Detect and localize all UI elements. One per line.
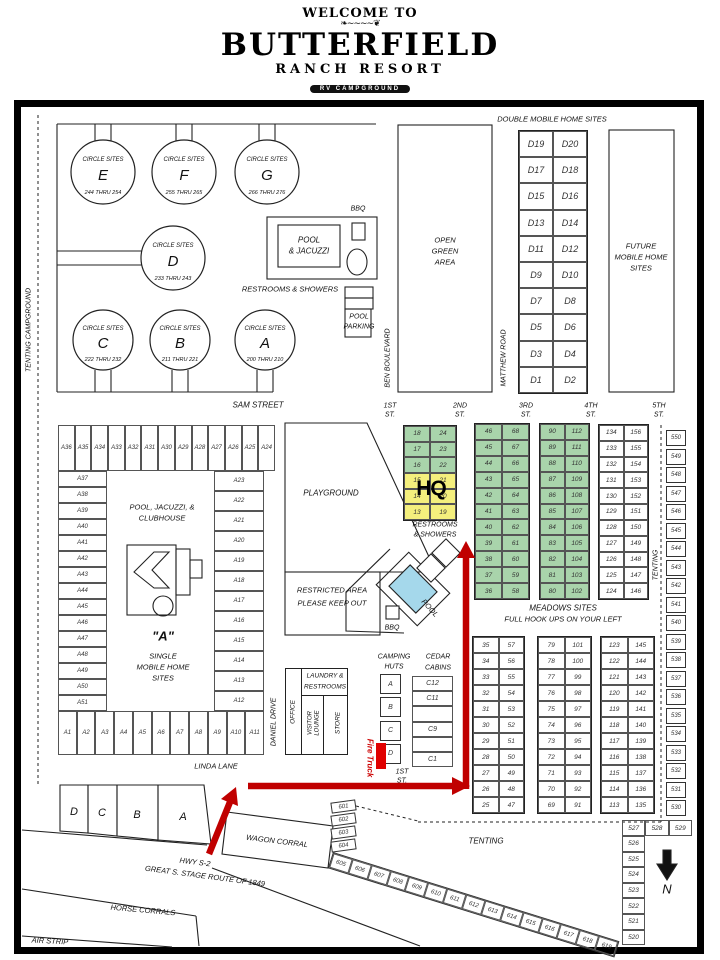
site-cell: 122 <box>601 653 628 669</box>
site-cell: 522 <box>622 898 645 914</box>
site-cell: 146 <box>624 583 649 599</box>
site-cell: 58 <box>502 583 529 599</box>
fourth-street-grid: 1341561331551321541311531301521291511281… <box>598 424 649 600</box>
site-cell: 532 <box>666 763 686 779</box>
site-cell: 81 <box>540 567 565 583</box>
site-cell: 542 <box>666 578 686 594</box>
corner-row-527-529: 527528529 <box>622 820 692 836</box>
site-cell: A36 <box>58 425 75 471</box>
site-cell: 132 <box>599 457 624 473</box>
a-sites-right-col: A23A22A21A20A19A18A17A16A15A14A13A12 <box>214 471 264 711</box>
campground-map-page: WELCOME TO ❧∼∼∼∼❦ BUTTERFIELD RANCH RESO… <box>0 0 720 960</box>
site-cell: A1 <box>58 711 77 755</box>
resort-logo-subtitle: RANCH RESORT <box>0 62 720 77</box>
site-cell: 530 <box>666 800 686 816</box>
site-cell: A35 <box>75 425 92 471</box>
site-cell: 133 <box>599 441 624 457</box>
site-cell: 60 <box>502 551 529 567</box>
site-cell: 92 <box>565 781 592 797</box>
hwy-sites-601-604: 601602603604 <box>331 801 356 852</box>
site-cell: A6 <box>152 711 171 755</box>
street-1-label: 1ST <box>384 403 397 410</box>
site-cell: 30 <box>473 717 499 733</box>
site-cell: 91 <box>565 797 592 813</box>
site-cell: 99 <box>565 669 592 685</box>
site-cell: 36 <box>475 583 502 599</box>
site-cell: A25 <box>242 425 259 471</box>
site-cell: 48 <box>499 781 525 797</box>
office-label: OFFICE <box>290 700 297 724</box>
a-sites-left-col: A37A38A39A40A41A42A43A44A45A46A47A48A49A… <box>58 471 107 711</box>
site-cell: A32 <box>125 425 142 471</box>
site-cell: 538 <box>666 652 686 668</box>
site-cell: 71 <box>538 765 565 781</box>
site-cell: 32 <box>473 685 499 701</box>
site-cell: 51 <box>499 733 525 749</box>
open-green-label-1: OPEN <box>434 236 455 245</box>
pool-jacuzzi-clubhouse-label-1: POOL, JACUZZI, & <box>129 503 194 512</box>
site-cell: D1 <box>519 367 553 393</box>
site-cell: A43 <box>58 567 107 583</box>
site-cell: 539 <box>666 634 686 650</box>
site-cell: A15 <box>214 631 264 651</box>
site-cell: D6 <box>553 314 587 340</box>
north-label: N <box>662 882 671 897</box>
pool-jacuzzi-label-2: & JACUZZI <box>289 247 329 256</box>
site-cell: D20 <box>553 131 587 157</box>
site-cell: 104 <box>565 551 590 567</box>
site-cell: 19 <box>430 504 456 520</box>
a-area-sub-2: MOBILE HOME <box>137 663 190 672</box>
camping-huts-label-1: CAMPING <box>378 654 411 661</box>
site-cell: 523 <box>622 883 645 899</box>
meadows-grid-2: 7910178100779976987597749673957294719370… <box>537 636 592 814</box>
pool-jacuzzi-clubhouse-label-2: CLUBHOUSE <box>139 514 186 523</box>
header: WELCOME TO ❧∼∼∼∼❦ BUTTERFIELD RANCH RESO… <box>0 0 720 109</box>
site-cell: 604 <box>330 838 356 852</box>
site-cell: 73 <box>538 733 565 749</box>
site-cell: A41 <box>58 535 107 551</box>
site-cell: A5 <box>133 711 152 755</box>
site-cell: D17 <box>519 157 553 183</box>
site-cell: 124 <box>599 583 624 599</box>
daniel-drive-label: DANIEL DRIVE <box>271 698 278 747</box>
site-cell: A <box>380 674 401 694</box>
site-cell: 76 <box>538 685 565 701</box>
site-cell: 97 <box>565 701 592 717</box>
site-cell: 106 <box>565 519 590 535</box>
cedar-cabins-list: C12C11C9C1 <box>412 676 453 767</box>
site-cell: 52 <box>499 717 525 733</box>
site-cell: 88 <box>540 456 565 472</box>
site-cell: 34 <box>473 653 499 669</box>
site-cell: A27 <box>208 425 225 471</box>
street-2-label-2: ST. <box>455 412 465 419</box>
restricted-label-2: PLEASE KEEP OUT <box>298 599 367 608</box>
site-cell: 534 <box>666 726 686 742</box>
site-cell: C12 <box>412 676 453 691</box>
site-cell: D12 <box>553 236 587 262</box>
street-2-label: 2ND <box>453 403 467 410</box>
site-cell: 31 <box>473 701 499 717</box>
site-cell: 47 <box>499 797 525 813</box>
site-cell: 29 <box>473 733 499 749</box>
sam-street-label: SAM STREET <box>232 401 283 410</box>
site-cell: 148 <box>624 552 649 568</box>
site-cell: 524 <box>622 867 645 883</box>
site-cell: 141 <box>628 701 655 717</box>
site-cell: 144 <box>628 653 655 669</box>
site-cell: 26 <box>473 781 499 797</box>
site-cell: 126 <box>599 552 624 568</box>
site-cell: 44 <box>475 456 502 472</box>
site-cell: 550 <box>666 430 686 446</box>
site-cell: 149 <box>624 536 649 552</box>
site-cell: 27 <box>473 765 499 781</box>
site-cell: 22 <box>430 457 456 473</box>
site-cell: 67 <box>502 440 529 456</box>
tenting-vertical-label: TENTING <box>653 550 660 581</box>
site-cell: A51 <box>58 695 107 711</box>
street-4-label: 4TH <box>584 403 597 410</box>
site-cell: 110 <box>565 456 590 472</box>
double-mobile-label: DOUBLE MOBILE HOME SITES <box>497 115 607 124</box>
site-cell: 84 <box>540 519 565 535</box>
site-cell: 55 <box>499 669 525 685</box>
laundry-label-2: RESTROOMS <box>304 684 346 691</box>
resort-logo-title: BUTTERFIELD <box>0 30 720 61</box>
camping-huts-label-2: HUTS <box>384 664 403 671</box>
site-cell: 102 <box>565 583 590 599</box>
site-cell: 529 <box>669 820 692 836</box>
site-cell: 57 <box>499 637 525 653</box>
site-cell: 41 <box>475 504 502 520</box>
site-cell: A34 <box>91 425 108 471</box>
site-cell: D8 <box>553 288 587 314</box>
site-cell: A4 <box>114 711 133 755</box>
site-cell: 49 <box>499 765 525 781</box>
site-cell: A21 <box>214 511 264 531</box>
ben-boulevard-label: BEN BOULEVARD <box>385 328 392 387</box>
street-3-label-2: ST. <box>521 412 531 419</box>
site-cell: 35 <box>473 637 499 653</box>
site-cell: 147 <box>624 567 649 583</box>
site-cell: 525 <box>622 852 645 868</box>
site-cell: 153 <box>624 472 649 488</box>
site-cell: 17 <box>404 442 430 458</box>
site-cell: D14 <box>553 210 587 236</box>
site-cell: A30 <box>158 425 175 471</box>
future-mobile-label-2: MOBILE HOME <box>615 253 668 262</box>
site-cell: A33 <box>108 425 125 471</box>
third-street-grid: 9011289111881108710986108851078410683105… <box>539 423 590 600</box>
site-cell: A12 <box>214 691 264 711</box>
playground-label: PLAYGROUND <box>303 489 358 498</box>
fire-truck-marker <box>376 743 386 769</box>
site-cell: 87 <box>540 472 565 488</box>
site-cell: B <box>380 697 401 717</box>
site-cell: 526 <box>622 836 645 852</box>
site-cell: 18 <box>404 426 430 442</box>
street-4-label-2: ST. <box>586 412 596 419</box>
site-cell: A8 <box>189 711 208 755</box>
site-cell: 113 <box>601 797 628 813</box>
site-cell: 83 <box>540 535 565 551</box>
site-cell: 143 <box>628 669 655 685</box>
site-cell: 139 <box>628 733 655 749</box>
site-cell: 541 <box>666 597 686 613</box>
site-cell: 112 <box>565 424 590 440</box>
site-cell: A45 <box>58 599 107 615</box>
site-cell: 56 <box>499 653 525 669</box>
matthew-road-label: MATTHEW ROAD <box>501 329 508 386</box>
site-cell: D4 <box>553 341 587 367</box>
tenting-area-label: TENTING <box>468 837 503 846</box>
street-5-label: 5TH <box>652 403 665 410</box>
site-cell <box>412 737 453 752</box>
site-cell: 537 <box>666 671 686 687</box>
site-cell: A2 <box>77 711 96 755</box>
site-cell: 68 <box>502 424 529 440</box>
a-sites-bottom-row: A1A2A3A4A5A6A7A8A9A10A11 <box>58 711 264 755</box>
site-cell: 115 <box>601 765 628 781</box>
future-mobile-label-1: FUTURE <box>626 242 656 251</box>
site-cell: 98 <box>565 685 592 701</box>
site-cell: C11 <box>412 691 453 706</box>
site-cell: 64 <box>502 488 529 504</box>
site-cell: D9 <box>519 262 553 288</box>
bbq-label-pool: BBQ <box>385 625 400 632</box>
site-cell: 54 <box>499 685 525 701</box>
site-cell: 100 <box>565 653 592 669</box>
site-cell: 135 <box>628 797 655 813</box>
site-cell: 120 <box>601 685 628 701</box>
site-cell: 121 <box>601 669 628 685</box>
site-cell: A46 <box>58 615 107 631</box>
site-cell: 94 <box>565 749 592 765</box>
site-cell: A49 <box>58 663 107 679</box>
site-cell: 111 <box>565 440 590 456</box>
site-cell: 155 <box>624 441 649 457</box>
site-cell: 117 <box>601 733 628 749</box>
site-cell: D11 <box>519 236 553 262</box>
site-cell: 128 <box>599 520 624 536</box>
site-cell: A19 <box>214 551 264 571</box>
site-cell: 24 <box>430 426 456 442</box>
site-cell: 86 <box>540 488 565 504</box>
site-cell: 131 <box>599 472 624 488</box>
site-cell: 142 <box>628 685 655 701</box>
site-cell: 118 <box>601 717 628 733</box>
site-cell: 13 <box>404 504 430 520</box>
restricted-label-1: RESTRICTED AREA <box>297 586 367 595</box>
site-cell: 107 <box>565 504 590 520</box>
site-cell: D10 <box>553 262 587 288</box>
site-cell: 95 <box>565 733 592 749</box>
site-cell: A48 <box>58 647 107 663</box>
site-cell: 119 <box>601 701 628 717</box>
site-cell: 46 <box>475 424 502 440</box>
site-cell: 151 <box>624 504 649 520</box>
site-cell: 53 <box>499 701 525 717</box>
site-cell: D15 <box>519 183 553 209</box>
a-sites-top-row: A36A35A34A33A32A31A30A29A28A27A26A25A24 <box>58 425 275 471</box>
site-cell: 521 <box>622 914 645 930</box>
site-cell: D7 <box>519 288 553 314</box>
site-cell: A50 <box>58 679 107 695</box>
first-st-bottom-label-1: 1ST <box>396 769 409 776</box>
site-cell: 103 <box>565 567 590 583</box>
fire-truck-label: Fire Truck <box>366 739 375 778</box>
tenting-campground-label: TENTING CAMPGROUND <box>26 288 33 372</box>
meadows-label: MEADOWS SITES <box>529 604 597 613</box>
a-area-sub-3: SITES <box>152 674 174 683</box>
site-cell: 77 <box>538 669 565 685</box>
corner-col-520-526: 526525524523522521520 <box>622 836 645 945</box>
site-cell: 129 <box>599 504 624 520</box>
site-cell: 79 <box>538 637 565 653</box>
site-cell: 65 <box>502 472 529 488</box>
site-cell: 23 <box>430 442 456 458</box>
pool-parking-label-1: POOL <box>349 314 368 321</box>
site-cell: A11 <box>245 711 264 755</box>
pool-jacuzzi-label-1: POOL <box>298 236 320 245</box>
site-cell: 138 <box>628 749 655 765</box>
rv-campground-ribbon: RV CAMPGROUND <box>310 85 410 93</box>
site-cell: 123 <box>601 637 628 653</box>
site-cell: 154 <box>624 457 649 473</box>
site-cell: A3 <box>95 711 114 755</box>
site-cell: 109 <box>565 472 590 488</box>
site-cell: 25 <box>473 797 499 813</box>
site-cell: 59 <box>502 567 529 583</box>
hq-label: HQ <box>416 477 446 501</box>
site-cell: A40 <box>58 519 107 535</box>
future-mobile-label-3: SITES <box>630 264 652 273</box>
site-cell: 125 <box>599 567 624 583</box>
site-cell: A7 <box>170 711 189 755</box>
open-green-label-2: GREEN <box>432 247 459 256</box>
street-3-label: 3RD <box>519 403 533 410</box>
site-cell: A44 <box>58 583 107 599</box>
site-cell: 37 <box>475 567 502 583</box>
store-label: STORE <box>335 712 342 734</box>
site-cell: 535 <box>666 708 686 724</box>
site-cell: 114 <box>601 781 628 797</box>
first-street-grid: 182417231622152114201319 <box>403 425 457 521</box>
site-cell: 156 <box>624 425 649 441</box>
site-cell: 50 <box>499 749 525 765</box>
site-cell: 150 <box>624 520 649 536</box>
site-cell: 520 <box>622 930 645 946</box>
site-cell: 96 <box>565 717 592 733</box>
site-cell: D5 <box>519 314 553 340</box>
site-cell: D16 <box>553 183 587 209</box>
site-cell: A17 <box>214 591 264 611</box>
site-cell: 140 <box>628 717 655 733</box>
site-cell: A42 <box>58 551 107 567</box>
site-cell: 531 <box>666 782 686 798</box>
site-cell: A37 <box>58 471 107 487</box>
site-cell: 33 <box>473 669 499 685</box>
site-cell: A28 <box>192 425 209 471</box>
site-cell: 527 <box>622 820 645 836</box>
site-cell: A18 <box>214 571 264 591</box>
site-cell: 62 <box>502 519 529 535</box>
site-cell: 28 <box>473 749 499 765</box>
site-cell: A26 <box>225 425 242 471</box>
site-cell: 546 <box>666 504 686 520</box>
site-cell: A29 <box>175 425 192 471</box>
site-cell: A31 <box>141 425 158 471</box>
site-cell: 136 <box>628 781 655 797</box>
site-cell: A39 <box>58 503 107 519</box>
site-cell: 45 <box>475 440 502 456</box>
linda-lane-label: LINDA LANE <box>194 762 238 771</box>
site-cell: 63 <box>502 504 529 520</box>
site-cell: 544 <box>666 541 686 557</box>
site-cell <box>412 706 453 721</box>
site-cell: 69 <box>538 797 565 813</box>
site-cell: D2 <box>553 367 587 393</box>
site-cell: 72 <box>538 749 565 765</box>
site-cell: 42 <box>475 488 502 504</box>
site-cell: 16 <box>404 457 430 473</box>
site-cell: 116 <box>601 749 628 765</box>
site-cell: A38 <box>58 487 107 503</box>
site-cell: 39 <box>475 535 502 551</box>
site-cell: C1 <box>412 752 453 767</box>
site-cell: 547 <box>666 486 686 502</box>
site-cell: 80 <box>540 583 565 599</box>
site-cell: 89 <box>540 440 565 456</box>
cedar-cabins-label-1: CEDAR <box>426 654 451 661</box>
site-cell: 108 <box>565 488 590 504</box>
first-st-bottom-label-2: ST. <box>397 778 407 785</box>
site-cell: 134 <box>599 425 624 441</box>
site-cell: D19 <box>519 131 553 157</box>
site-cell: 101 <box>565 637 592 653</box>
site-cell: A23 <box>214 471 264 491</box>
site-cell: 75 <box>538 701 565 717</box>
site-cell: 536 <box>666 689 686 705</box>
site-cell: 78 <box>538 653 565 669</box>
air-strip-label: AIR STRIP <box>31 936 68 947</box>
site-cell: D18 <box>553 157 587 183</box>
hookups-label: FULL HOOK UPS ON YOUR LEFT <box>504 615 621 624</box>
site-cell: 545 <box>666 523 686 539</box>
site-cell: A13 <box>214 671 264 691</box>
site-cell: A24 <box>258 425 275 471</box>
site-cell: 61 <box>502 535 529 551</box>
site-cell: A10 <box>227 711 246 755</box>
site-cell: D13 <box>519 210 553 236</box>
site-cell: 85 <box>540 504 565 520</box>
site-cell: 82 <box>540 551 565 567</box>
visitor-lounge-label: VISITORLOUNGE <box>307 710 320 735</box>
fifth-street-list: 5505495485475465455445435425415405395385… <box>666 430 686 816</box>
site-cell: 40 <box>475 519 502 535</box>
street-1-label-2: ST. <box>385 412 395 419</box>
site-cell: A20 <box>214 531 264 551</box>
site-cell: 145 <box>628 637 655 653</box>
site-cell: 533 <box>666 745 686 761</box>
site-cell: 43 <box>475 472 502 488</box>
site-cell: A22 <box>214 491 264 511</box>
street-5-label-2: ST. <box>654 412 664 419</box>
open-green-label-3: AREA <box>435 258 455 267</box>
site-cell: C9 <box>412 722 453 737</box>
